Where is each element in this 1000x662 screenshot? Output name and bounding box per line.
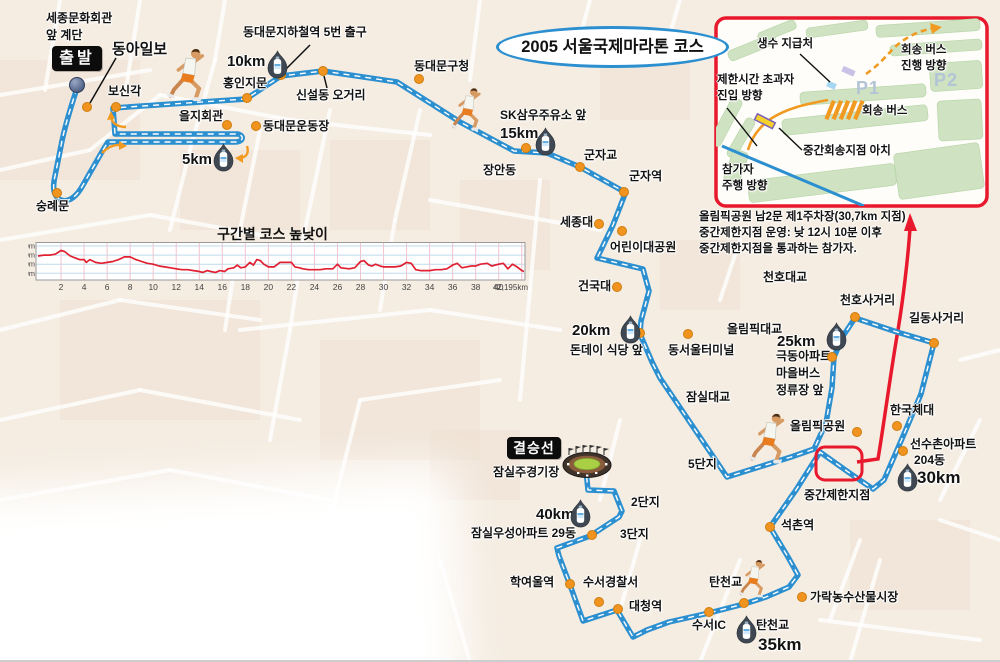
landmark-dot [594,219,604,229]
chart-x-tick: 38 [471,282,481,292]
landmark-dot [617,226,627,236]
city-block [180,150,300,230]
chart-x-final-tick: 42,195km [493,283,528,292]
landmark-dot [619,187,629,197]
chart-x-tick: 22 [287,282,297,292]
landmark-dot [594,597,604,607]
road [0,470,170,500]
landmark-dot [414,74,424,84]
landmark-dot [683,329,693,339]
runner-icon [449,86,485,132]
landmark-dot [850,312,860,322]
map-title: 2005 서울국제마라톤 코스 [496,26,729,68]
landmark-dot [251,121,261,131]
city-block [600,60,690,120]
road [440,560,470,662]
road [940,420,980,500]
inset-park-shape [929,60,983,92]
chart-y-tick: 20m [28,260,35,269]
water-station-marker-35km [736,615,757,644]
chart-x-tick: 2 [59,282,64,292]
landmark-dot [704,607,714,617]
road [215,0,225,60]
landmark-dot [82,102,92,112]
landmark-dot [613,604,623,614]
chart-x-tick: 26 [333,282,343,292]
road [960,350,1000,360]
chart-y-tick: 10m [28,269,35,278]
landmark-dot [929,338,939,348]
checkpoint-reference-line [857,228,910,462]
landmark-dot [612,282,622,292]
start-point-marker [70,78,85,93]
road [470,0,480,80]
chart-x-tick: 4 [82,282,87,292]
chart-x-tick: 20 [264,282,274,292]
road [170,470,330,500]
water-station-marker-5km [213,143,234,172]
chart-x-tick: 36 [448,282,458,292]
inset-detail-box [708,18,987,206]
water-station-marker-40km [570,499,591,528]
road [620,540,640,610]
chart-x-tick: 16 [218,282,228,292]
landmark-dot [222,120,232,130]
finish-badge: 결승선 [507,437,561,459]
landmark-dot [852,427,862,437]
road [305,110,330,230]
chart-x-tick: 12 [171,282,181,292]
landmark-dot [898,446,908,456]
water-station-marker-30km [897,463,918,492]
marathon-course-map: 24681012141618202224262830323436384042,1… [0,0,1000,662]
inset-park-shape [937,99,983,141]
water-station-marker-10km [267,50,288,79]
road [430,310,560,330]
chart-x-tick: 24 [310,282,320,292]
landmark-dot [587,530,597,540]
chart-x-tick: 8 [128,282,133,292]
city-block [330,140,430,230]
chart-y-tick: 40m [28,242,35,251]
landmark-dot [111,102,121,112]
road [290,120,430,135]
chart-x-tick: 6 [105,282,110,292]
runner-icon [747,411,789,465]
runner-icon [737,558,769,599]
stadium-icon [563,445,611,478]
chart-x-tick: 34 [425,282,435,292]
runner-icon [165,46,209,103]
landmark-dot [318,66,328,76]
elevation-chart-title: 구간별 코스 높낮이 [175,224,370,244]
chart-y-tick: 30m [28,251,35,260]
water-station-marker-25km [826,322,847,351]
chart-x-tick: 28 [356,282,366,292]
water-station-marker-20km [620,315,641,344]
landmark-dot [827,352,837,362]
road [820,620,980,640]
checkpoint-reference-arrowhead [904,213,917,231]
road [520,290,530,400]
landmark-dot [521,143,531,153]
chart-x-tick: 10 [148,282,158,292]
landmark-dot [52,188,62,198]
landmark-dot [565,579,575,589]
landmark-dot [739,598,749,608]
start-badge: 출발 [52,46,102,71]
landmark-dot [575,162,585,172]
landmark-dot [797,592,807,602]
landmark-dot [765,522,775,532]
chart-x-tick: 32 [402,282,412,292]
map-fade-area [0,510,424,662]
chart-x-tick: 30 [379,282,389,292]
landmark-dot [892,421,902,431]
landmark-dot [242,93,252,103]
road [240,310,430,330]
road [270,330,290,440]
water-station-marker-15km [535,127,556,156]
chart-x-tick: 18 [241,282,251,292]
chart-x-tick: 14 [195,282,205,292]
